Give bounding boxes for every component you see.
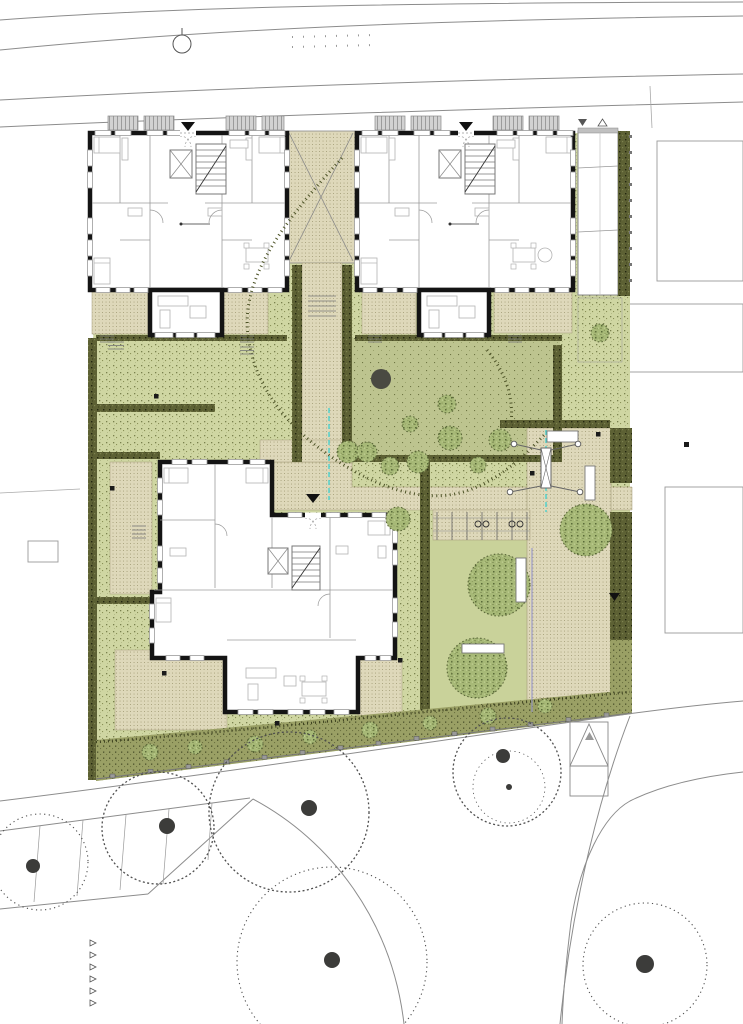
b2-windows-north — [414, 131, 430, 136]
b3-windows-wing-south — [365, 656, 376, 661]
b2-balcony — [375, 116, 405, 130]
b2-windows-north — [537, 131, 553, 136]
b2-windows-south-w — [383, 288, 397, 293]
b1-windows-east — [285, 172, 290, 188]
b1-bath — [128, 208, 142, 216]
b2-coffee-table — [459, 306, 475, 318]
b1-windows-south-w — [134, 288, 148, 293]
b2-windows-east — [571, 240, 576, 256]
b1-windows-south-w — [96, 288, 110, 293]
driveway-fence-posts — [629, 215, 632, 218]
survey-marker — [596, 432, 601, 437]
b3-windows-wing-north — [288, 513, 302, 518]
b1-sofa — [160, 310, 170, 328]
street-tree-trunk-small — [506, 784, 512, 790]
b1-windows-bay — [197, 333, 215, 338]
b2-bath — [395, 208, 409, 216]
b2-dining-table — [513, 248, 535, 262]
hedge-bush — [423, 716, 437, 730]
b1-windows-south-e — [268, 288, 282, 293]
play-post — [507, 489, 513, 495]
b1-windows-west — [88, 240, 93, 256]
driveway-fence-posts — [629, 167, 632, 170]
b2-chair — [511, 264, 516, 269]
terrace-b3-southeast — [358, 660, 402, 720]
b1-bed — [259, 137, 285, 153]
b3-dining-table — [302, 682, 326, 696]
hedge-court-east-a — [610, 428, 632, 483]
b1-desk — [230, 140, 248, 148]
fence-posts — [300, 751, 305, 755]
fence-posts — [566, 718, 571, 722]
b2-windows-north — [382, 131, 398, 136]
bench — [585, 466, 595, 500]
b2-bed — [361, 137, 387, 153]
b2-windows-west — [355, 218, 360, 234]
fence-posts — [414, 736, 419, 740]
b1-windows-north — [229, 131, 245, 136]
fence-posts — [110, 774, 115, 778]
hedge-garden-divider-2 — [96, 452, 160, 459]
hedge-bush — [247, 736, 263, 752]
b2-windows-north — [517, 131, 533, 136]
b3-bath — [378, 546, 386, 558]
b3-windows-south — [310, 710, 325, 715]
b3-windows-north — [250, 460, 265, 465]
b1-door-arrow-dot — [180, 223, 183, 226]
survey-marker — [154, 394, 159, 399]
b3-windows-north — [192, 460, 207, 465]
b1-balcony — [108, 116, 138, 130]
hedge-bush — [538, 699, 552, 713]
b3-windows-north — [172, 460, 187, 465]
b1-windows-north — [269, 131, 285, 136]
b2-windows-bay — [445, 333, 463, 338]
b2-desk — [497, 140, 515, 148]
tree — [438, 395, 456, 413]
tree — [591, 324, 609, 342]
b1-windows-south-w — [116, 288, 130, 293]
hedge-garden-divider-3 — [96, 597, 158, 604]
tree — [402, 416, 418, 432]
hedge-court-east-b — [610, 512, 632, 640]
driveway-top-band — [578, 128, 618, 133]
b3-chair — [300, 676, 305, 681]
hedge-garden-divider-1 — [88, 404, 215, 412]
play-post — [511, 441, 517, 447]
b1-windows-south-e — [248, 288, 262, 293]
b3-sofa — [246, 668, 276, 678]
b3-chair — [322, 676, 327, 681]
hedge-court-north — [500, 420, 610, 428]
b2-windows-west — [355, 172, 360, 188]
b2-windows-bay — [424, 333, 442, 338]
b2-windows-bay — [466, 333, 484, 338]
hedge-southlawn-west — [420, 462, 430, 712]
hedge-bush — [188, 740, 202, 754]
hedge-driveway — [618, 131, 630, 296]
driveway-fence-posts — [629, 135, 632, 138]
b3-bed — [164, 468, 188, 483]
hedge-meadow-east — [553, 345, 562, 460]
b2-bed — [546, 137, 572, 153]
bike-parking-pad — [433, 510, 530, 540]
tree — [381, 457, 399, 475]
b2-windows-west — [355, 240, 360, 256]
b1-windows-north — [147, 131, 163, 136]
fence-posts — [490, 727, 495, 731]
fence-posts — [186, 765, 191, 769]
b2-bed — [361, 258, 377, 284]
b1-windows-east — [285, 240, 290, 256]
b1-balcony — [262, 116, 284, 130]
b2-windows-west — [355, 150, 360, 166]
tree — [337, 441, 359, 463]
b1-windows-north — [115, 131, 131, 136]
b3-windows-west-b — [150, 628, 155, 643]
driveway-fence-posts — [629, 231, 632, 234]
b1-balcony — [144, 116, 174, 130]
b2-windows-east — [571, 260, 576, 276]
b2-windows-south-e — [495, 288, 509, 293]
driveway-fence-posts — [629, 247, 632, 250]
b2-chair — [531, 264, 536, 269]
bench — [547, 431, 578, 442]
survey-marker — [110, 486, 115, 491]
tree — [357, 442, 377, 462]
central-walkway — [302, 263, 342, 462]
tree-court — [560, 504, 612, 556]
street-tree-trunk — [636, 955, 654, 973]
b3-windows-south — [288, 710, 303, 715]
driveway-fence-posts — [629, 199, 632, 202]
b3-windows-west-a — [158, 500, 163, 515]
play-post — [577, 489, 583, 495]
b1-wardrobe — [122, 138, 128, 160]
fence-posts — [452, 732, 457, 736]
b2-windows-south-e — [535, 288, 549, 293]
b1-bed — [94, 137, 120, 153]
b2-windows-north — [557, 131, 573, 136]
b1-balcony — [226, 116, 256, 130]
street-tree-trunk — [159, 818, 175, 834]
b1-chair — [244, 264, 249, 269]
b2-chair — [511, 243, 516, 248]
play-post — [575, 441, 581, 447]
b1-windows-west — [88, 260, 93, 276]
survey-marker — [684, 442, 689, 447]
b3-windows-west-a — [158, 546, 163, 561]
manhole-circle — [173, 35, 191, 53]
b1-windows-north — [95, 131, 111, 136]
tree — [407, 451, 429, 473]
b2-windows-north — [497, 131, 513, 136]
b3-bed — [156, 598, 171, 622]
b3-desk — [170, 548, 186, 556]
bench — [462, 644, 504, 653]
b2-round-table — [538, 248, 552, 262]
street-tree-trunk — [496, 749, 510, 763]
b1-windows-bay — [155, 333, 173, 338]
b3-chair — [322, 698, 327, 703]
terrace-b3-west — [110, 462, 152, 594]
b3-bath — [336, 546, 348, 554]
b3-bed — [368, 521, 390, 535]
b3-windows-east — [393, 598, 398, 613]
b3-chair — [300, 698, 305, 703]
b2-windows-south-e — [515, 288, 529, 293]
hedge-walkway-east — [342, 265, 352, 462]
b3-entry-door — [305, 513, 321, 519]
b2-windows-south-e — [555, 288, 569, 293]
b2-balcony — [529, 116, 559, 130]
b2-windows-east — [571, 218, 576, 234]
driveway-fence-posts — [629, 151, 632, 154]
b2-windows-north — [362, 131, 378, 136]
terrace-b2-east — [494, 292, 572, 333]
driveway — [578, 131, 618, 295]
site-plan-drawing — [0, 0, 743, 1024]
survey-marker — [398, 658, 403, 663]
b2-windows-north — [434, 131, 450, 136]
b2-windows-south-w — [403, 288, 417, 293]
b3-windows-south — [334, 710, 349, 715]
b1-windows-south-e — [228, 288, 242, 293]
b3-windows-south — [238, 710, 253, 715]
street-tree-trunk — [26, 859, 40, 873]
b3-windows-wing-south — [380, 656, 391, 661]
b2-windows-west — [355, 260, 360, 276]
survey-marker — [530, 471, 535, 476]
b2-windows-south-w — [363, 288, 377, 293]
b3-coffee-table — [284, 676, 296, 686]
b3-windows-east — [393, 550, 398, 565]
b3-windows-west-b — [150, 604, 155, 619]
b3-sofa — [248, 684, 258, 700]
hedge-bush — [142, 744, 158, 760]
hedge-bush — [303, 730, 317, 744]
b1-bed — [94, 258, 110, 284]
street-tree-trunk — [301, 800, 317, 816]
terrace-b1-east — [224, 292, 268, 334]
b1-chair — [244, 243, 249, 248]
terrace-b2-west — [362, 292, 416, 334]
site-plan-canvas — [0, 0, 743, 1024]
play-court — [527, 428, 611, 714]
b1-windows-bay — [176, 333, 194, 338]
b2-balcony — [493, 116, 523, 130]
b3-bed — [246, 468, 268, 483]
b3-windows-wing-north — [326, 513, 340, 518]
terrace-b3-southwest — [115, 650, 227, 730]
b3-windows-north — [228, 460, 243, 465]
existing-tree-trunk — [371, 369, 391, 389]
terrace-b1-west — [92, 292, 148, 334]
fence-posts — [338, 746, 343, 750]
b2-sofa — [429, 310, 439, 328]
street-tree-trunk — [324, 952, 340, 968]
b3-windows-east — [393, 622, 398, 637]
survey-marker — [275, 721, 280, 726]
b2-sofa — [427, 296, 457, 306]
driveway-fence-posts — [629, 183, 632, 186]
b1-chair — [264, 243, 269, 248]
b1-chair — [264, 264, 269, 269]
driveway-fence-posts — [629, 279, 632, 282]
b3-windows-west-a — [158, 478, 163, 493]
b1-coffee-table — [190, 306, 206, 318]
b1-windows-east — [285, 150, 290, 166]
b1-windows-west — [88, 218, 93, 234]
driveway-fence-posts — [629, 263, 632, 266]
b3-windows-south — [258, 710, 273, 715]
b2-chair — [531, 243, 536, 248]
fence-posts — [262, 755, 267, 759]
survey-marker — [162, 671, 167, 676]
b2-door-arrow-dot — [449, 223, 452, 226]
b2-windows-east — [571, 150, 576, 166]
tree — [470, 457, 486, 473]
b1-dining-table — [246, 248, 268, 262]
b3-windows-south-w — [190, 656, 204, 661]
bench — [516, 558, 526, 602]
hedge-bush — [362, 722, 378, 738]
b2-wardrobe — [389, 138, 395, 160]
b3-windows-west-a — [158, 568, 163, 583]
b1-windows-north — [249, 131, 265, 136]
fence-posts — [376, 741, 381, 745]
b2-windows-east — [571, 172, 576, 188]
b3-windows-wing-north — [348, 513, 362, 518]
b1-windows-west — [88, 172, 93, 188]
b1-windows-east — [285, 260, 290, 276]
tree — [489, 429, 511, 451]
b1-windows-west — [88, 150, 93, 166]
b2-balcony — [411, 116, 441, 130]
b1-sofa — [158, 296, 188, 306]
b3-windows-south-w — [166, 656, 180, 661]
b3-windows-wing-north — [372, 513, 386, 518]
